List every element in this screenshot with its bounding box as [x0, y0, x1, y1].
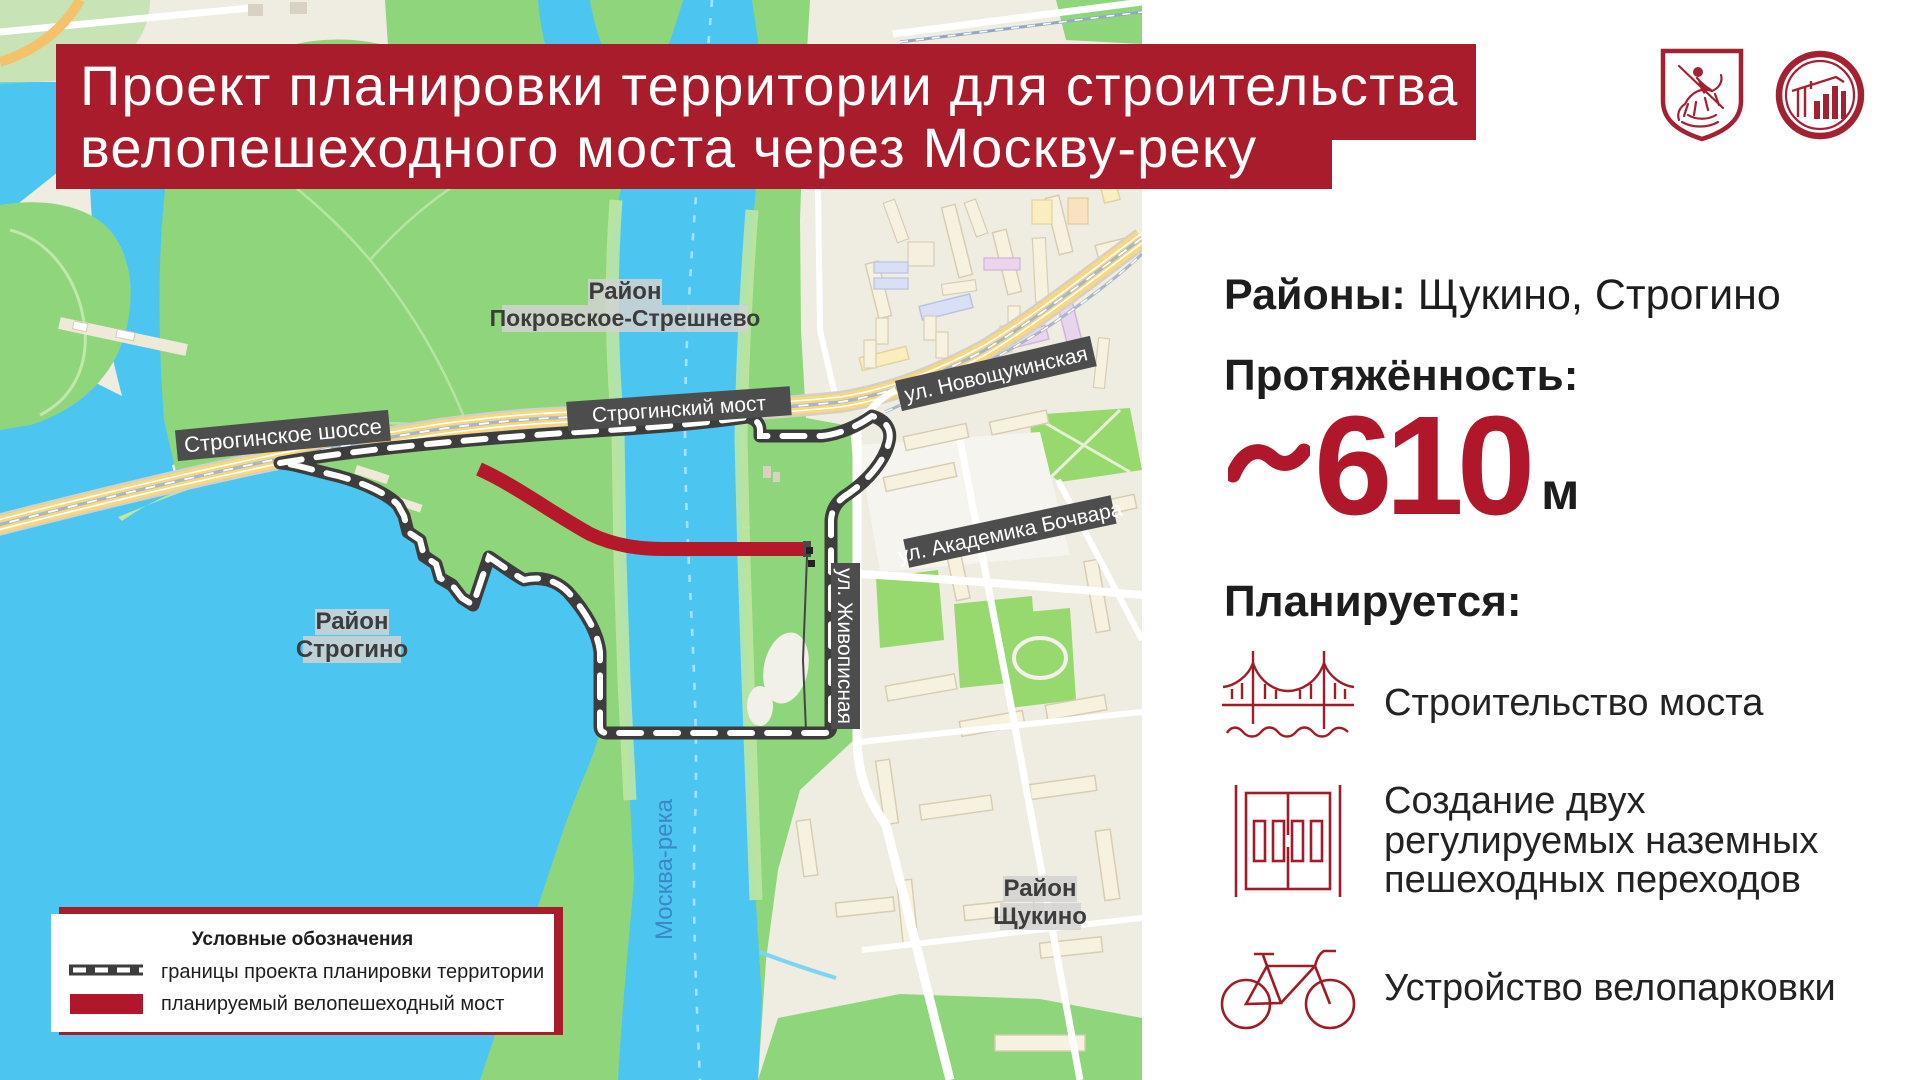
- svg-text:Покровское-Стрешнево: Покровское-Стрешнево: [490, 305, 761, 331]
- svg-text:Район: Район: [1004, 875, 1077, 902]
- svg-text:Москва-река: Москва-река: [651, 798, 678, 940]
- svg-text:Щукино: Щукино: [993, 903, 1087, 930]
- svg-text:Район: Район: [316, 608, 389, 635]
- svg-text:Строгино: Строгино: [296, 636, 408, 663]
- svg-text:Район: Район: [589, 278, 662, 305]
- svg-text:ул. Живописная: ул. Живописная: [833, 568, 856, 724]
